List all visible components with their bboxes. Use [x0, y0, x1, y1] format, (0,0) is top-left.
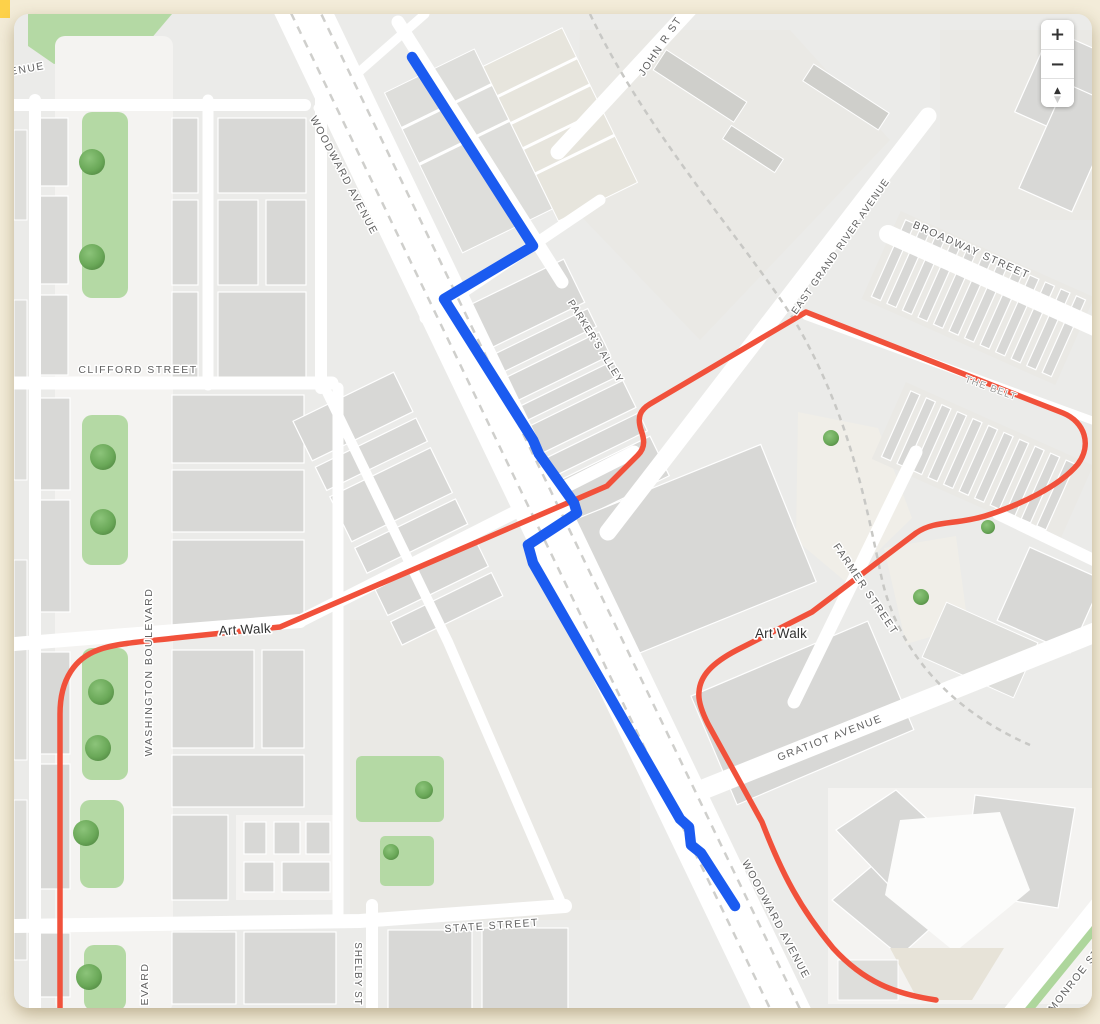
label-boulevard-partial: EVARD — [139, 963, 151, 1006]
map-zoom-controls: + − ▲ ▼ — [1041, 20, 1074, 107]
label-art-walk-east: Art Walk — [755, 626, 807, 641]
map-container: ENUE JOHN R ST WOODWARD AVENUE PARKER'S … — [14, 14, 1092, 1008]
label-art-walk-west: Art Walk — [218, 621, 271, 639]
zoom-in-button[interactable]: + — [1041, 20, 1074, 49]
label-washington-boulevard: WASHINGTON BOULEVARD — [143, 588, 155, 757]
pitch-toggle-button[interactable]: ▲ ▼ — [1041, 78, 1074, 107]
pitch-down-icon: ▼ — [1041, 96, 1074, 105]
label-clifford-street: CLIFFORD STREET — [78, 364, 197, 376]
page-corner-accent — [0, 0, 10, 18]
map-canvas[interactable]: ENUE JOHN R ST WOODWARD AVENUE PARKER'S … — [14, 14, 1092, 1008]
zoom-out-button[interactable]: − — [1041, 49, 1074, 78]
page: { "page": { "background": "#f3ecd9", "co… — [0, 0, 1100, 1024]
label-shelby-street: SHELBY ST — [352, 942, 363, 1006]
